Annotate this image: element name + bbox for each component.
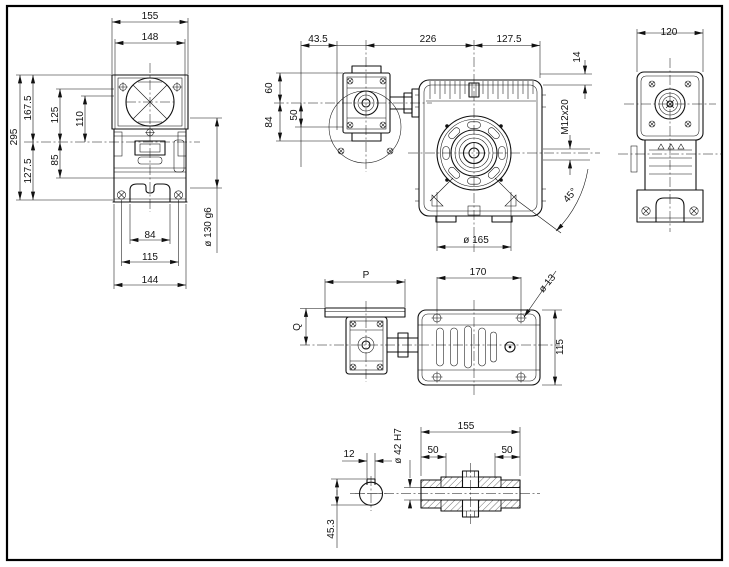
dim-side-base-144: 144 bbox=[142, 276, 159, 286]
side-view bbox=[16, 18, 222, 289]
dim-section-bore-depth-left: 50 bbox=[427, 446, 438, 456]
dim-side-85: 85 bbox=[51, 154, 61, 165]
drawing-canvas bbox=[0, 0, 729, 567]
dim-plan-115: 115 bbox=[556, 339, 566, 355]
dim-side-base-84: 84 bbox=[144, 231, 155, 241]
dim-side-height-above-axis: 167.5 bbox=[24, 95, 34, 120]
dim-side-width-flange: 148 bbox=[142, 33, 159, 43]
dim-side-height-total: 295 bbox=[10, 129, 20, 146]
dim-front-60: 60 bbox=[265, 82, 275, 93]
dim-section-bore-depth-right: 50 bbox=[501, 446, 512, 456]
dim-front-127-5: 127.5 bbox=[496, 35, 521, 45]
dim-plan-170: 170 bbox=[470, 268, 487, 278]
dim-back-width: 120 bbox=[661, 28, 678, 38]
technical-drawing-page: 155 148 295 167.5 125 110 127.5 85 84 11… bbox=[0, 0, 729, 567]
dim-side-base-115: 115 bbox=[142, 253, 158, 263]
dim-section-hub-length: 155 bbox=[458, 422, 475, 432]
front-view bbox=[274, 40, 600, 252]
plan-view bbox=[300, 271, 562, 397]
dim-side-width-top: 155 bbox=[142, 12, 159, 22]
dim-section-bore-dia: ø 42 H7 bbox=[394, 428, 404, 464]
dim-front-84: 84 bbox=[265, 116, 275, 127]
dim-front-50: 50 bbox=[290, 109, 300, 120]
dim-section-keyway-width: 12 bbox=[343, 450, 354, 460]
dim-front-14: 14 bbox=[573, 51, 583, 62]
dim-front-flange-dia: ø 165 bbox=[463, 236, 489, 246]
dim-side-125: 125 bbox=[51, 107, 61, 124]
dim-section-keyway-depth: 45.3 bbox=[327, 519, 337, 538]
dim-plan-q: Q bbox=[293, 323, 303, 331]
dim-front-tapped-hole: M12x20 bbox=[561, 99, 571, 135]
dim-plan-p: P bbox=[363, 271, 370, 281]
back-view bbox=[618, 29, 722, 232]
dim-side-height-below-axis: 127.5 bbox=[24, 158, 34, 183]
dim-side-hub-dia: ø 130 g6 bbox=[204, 207, 214, 246]
dim-side-110: 110 bbox=[76, 111, 86, 127]
dim-front-43-5: 43.5 bbox=[308, 35, 327, 45]
dim-front-226: 226 bbox=[420, 35, 437, 45]
